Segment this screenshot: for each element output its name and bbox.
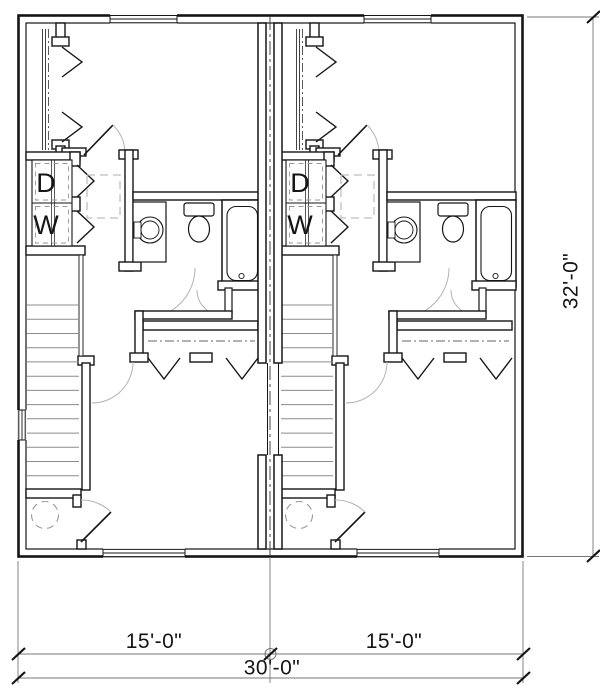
dim-label-total-width: 30'-0" [244,657,301,680]
bathtub [222,200,262,287]
window-top [110,14,177,24]
floor-plan-svg: D W [0,0,600,689]
building-outline [19,16,523,557]
dim-label-depth: 32'-0" [560,253,583,310]
dim-label-unit1-width: 15'-0" [126,630,183,653]
stair-rail [79,255,83,356]
party-wall [258,16,282,556]
dim-label-unit2-width: 15'-0" [366,630,423,653]
window-left [17,410,27,440]
washer-label: W [33,210,59,240]
window-bottom [103,548,185,558]
floor-plan-page: D W [0,0,600,689]
sink-vanity [133,202,166,262]
tub-drain [239,273,244,278]
dryer-label: D [36,168,56,198]
washer-dryer-unit: D W [32,160,72,246]
